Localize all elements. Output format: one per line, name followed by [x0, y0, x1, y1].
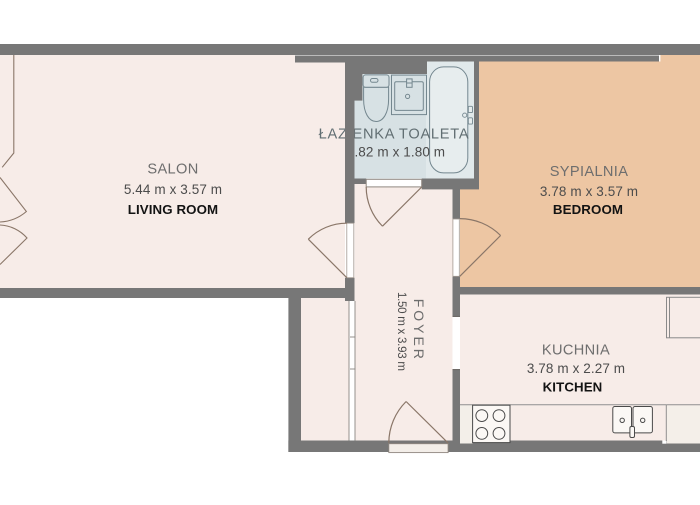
svg-text:SALON: SALON	[147, 162, 198, 178]
svg-text:BEDROOM: BEDROOM	[553, 202, 623, 217]
svg-text:1.82 m x 1.80 m: 1.82 m x 1.80 m	[347, 145, 445, 160]
svg-text:3.78 m x 3.57 m: 3.78 m x 3.57 m	[540, 184, 638, 199]
svg-text:KITCHEN: KITCHEN	[543, 380, 603, 395]
svg-text:ŁAZIENKA TOALETA: ŁAZIENKA TOALETA	[319, 127, 470, 143]
svg-text:LIVING ROOM: LIVING ROOM	[128, 202, 218, 217]
svg-text:1.50 m x 3.93 m: 1.50 m x 3.93 m	[395, 292, 407, 371]
svg-text:SYPIALNIA: SYPIALNIA	[550, 164, 629, 180]
svg-text:3.78 m x 2.27 m: 3.78 m x 2.27 m	[527, 361, 625, 376]
svg-text:5.44 m x 3.57 m: 5.44 m x 3.57 m	[124, 182, 222, 197]
svg-text:FOYER: FOYER	[411, 299, 427, 362]
svg-text:KUCHNIA: KUCHNIA	[542, 343, 610, 359]
